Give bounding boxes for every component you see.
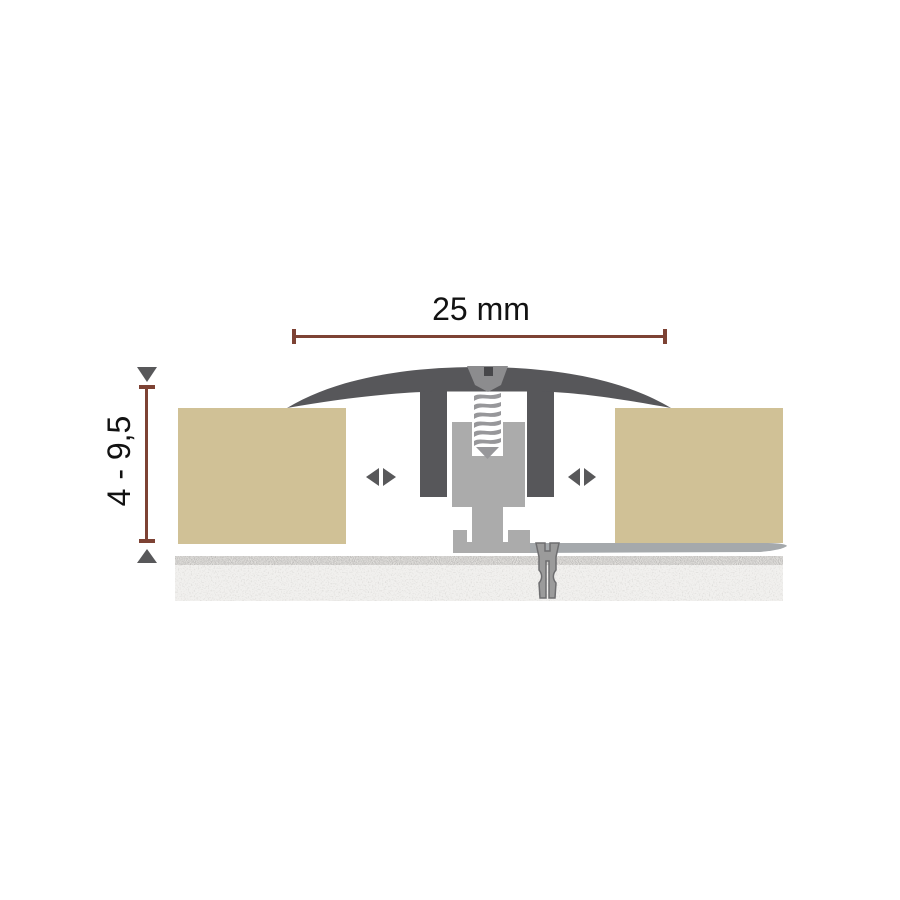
arrow-left-icon: [366, 468, 379, 486]
base-profile-foot-tab-left: [453, 530, 467, 543]
width-dimension-label: 25 mm: [432, 291, 530, 327]
screw-slot: [484, 367, 493, 376]
floor-covering-left: [178, 408, 346, 544]
expansion-gap-arrows-left-icon: [366, 468, 396, 486]
height-dimension: 4 - 9,5: [101, 367, 157, 563]
top-profile-leg-right: [527, 389, 554, 497]
width-dimension-tick-left: [292, 329, 296, 344]
base-profile-foot-plate: [453, 542, 530, 553]
base-profile-stem: [472, 507, 503, 543]
base-rail: [530, 543, 787, 553]
height-dimension-tick-bottom: [139, 539, 155, 543]
subfloor-screed: [175, 556, 783, 601]
height-dimension-label: 4 - 9,5: [101, 416, 137, 507]
top-profile-leg-left: [420, 389, 447, 497]
height-arrow-top-icon: [137, 367, 157, 382]
expansion-gap-arrows-right-icon: [568, 468, 596, 486]
subfloor-surface-speckle: [175, 556, 783, 565]
floor-covering-right: [615, 408, 783, 543]
height-arrow-bottom-icon: [137, 549, 157, 563]
arrow-right-icon: [383, 468, 396, 486]
arrow-left-icon: [568, 468, 580, 486]
base-profile-foot-tab-right: [508, 530, 530, 543]
height-dimension-tick-top: [139, 385, 155, 389]
arrow-right-icon: [584, 468, 596, 486]
diagram-canvas: 25 mm 4 - 9,5: [0, 0, 900, 900]
transition-profile-diagram: 25 mm 4 - 9,5: [0, 0, 900, 900]
width-dimension-tick-right: [663, 329, 667, 344]
width-dimension: 25 mm: [292, 291, 667, 344]
